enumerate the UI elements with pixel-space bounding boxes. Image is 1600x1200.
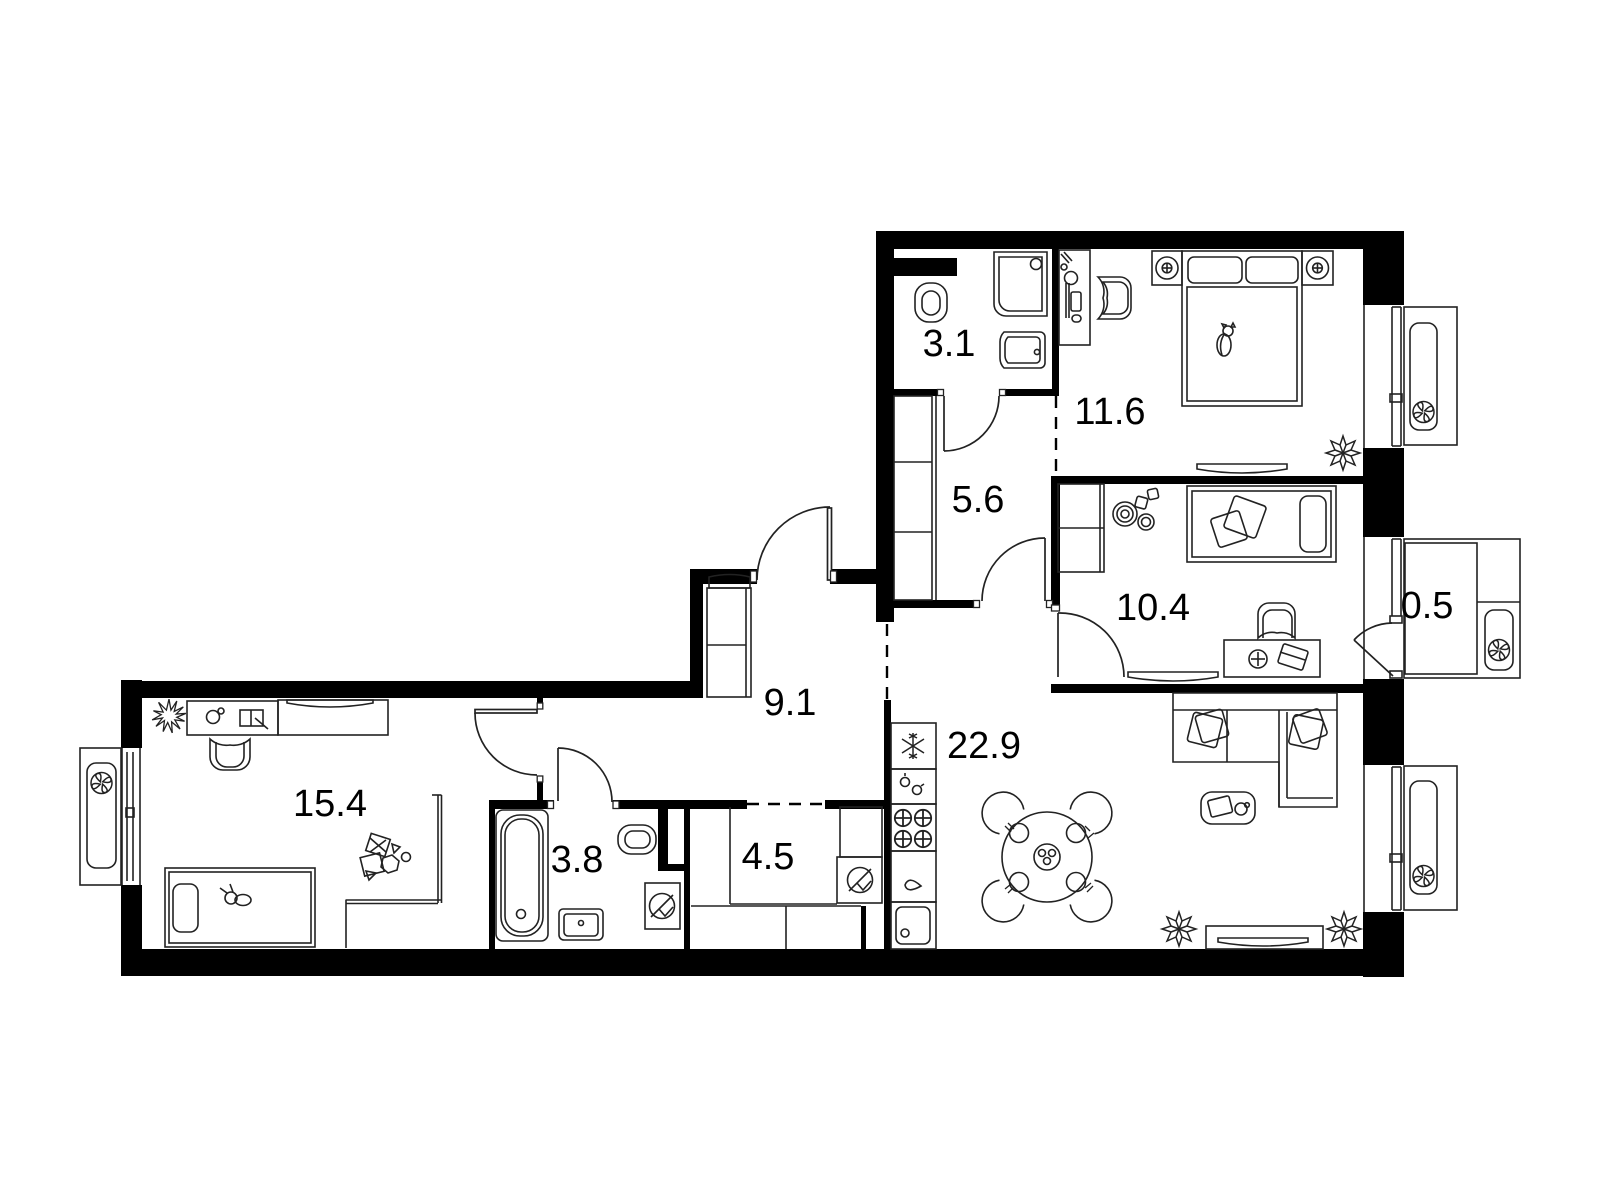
svg-text:3.8: 3.8 (551, 839, 604, 881)
svg-text:4.5: 4.5 (742, 836, 795, 878)
svg-text:22.9: 22.9 (947, 725, 1021, 767)
svg-text:11.6: 11.6 (1074, 391, 1145, 433)
svg-text:9.1: 9.1 (764, 682, 817, 724)
svg-text:0.5: 0.5 (1401, 585, 1454, 627)
svg-text:15.4: 15.4 (293, 783, 367, 825)
svg-text:5.6: 5.6 (952, 479, 1005, 521)
svg-text:10.4: 10.4 (1116, 587, 1190, 629)
svg-text:3.1: 3.1 (923, 323, 976, 365)
